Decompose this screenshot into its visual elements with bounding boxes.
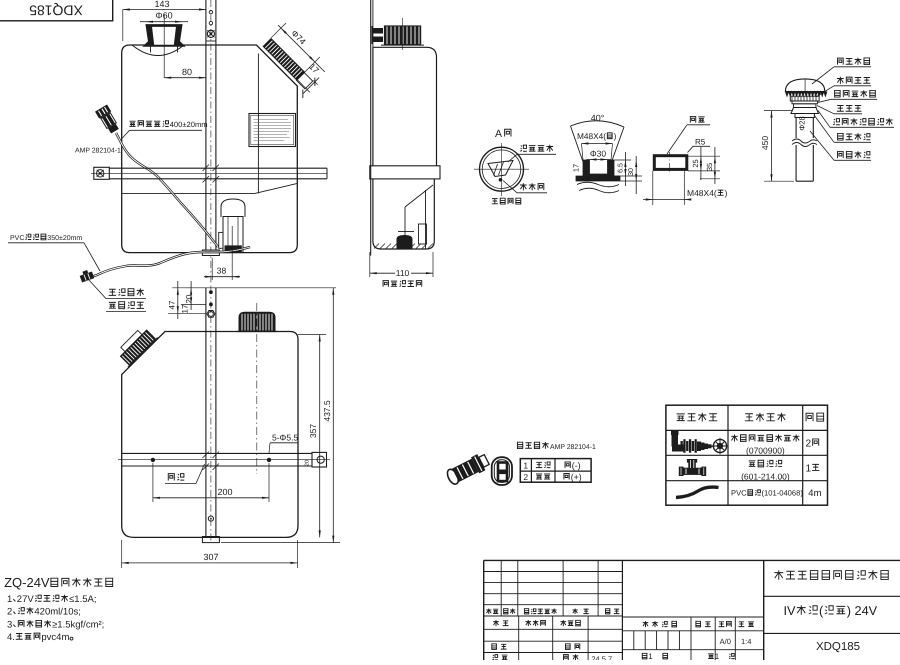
svg-text:Φ28: Φ28 xyxy=(798,116,807,130)
svg-text:): ) xyxy=(725,188,728,198)
svg-text:(601-214.00): (601-214.00) xyxy=(741,471,790,481)
svg-text:110: 110 xyxy=(396,268,410,278)
svg-text:5-Φ5.5: 5-Φ5.5 xyxy=(272,433,298,443)
svg-text:4m: 4m xyxy=(808,488,821,499)
svg-text:2: 2 xyxy=(7,607,12,618)
svg-text:27V: 27V xyxy=(17,594,35,605)
svg-text:80: 80 xyxy=(182,67,192,77)
svg-text:20: 20 xyxy=(305,460,311,466)
svg-text:437.5: 437.5 xyxy=(322,400,332,422)
svg-text:1: 1 xyxy=(806,463,812,474)
svg-text:1: 1 xyxy=(7,594,12,605)
svg-text:(-): (-) xyxy=(572,460,581,470)
svg-text:1: 1 xyxy=(523,460,528,470)
svg-text:1: 1 xyxy=(648,652,653,660)
svg-text:≤1.5A;: ≤1.5A; xyxy=(69,594,96,605)
svg-text:Φ60: Φ60 xyxy=(155,11,172,21)
svg-text:30: 30 xyxy=(628,168,635,176)
svg-text:pvc4m: pvc4m xyxy=(41,632,69,643)
svg-text:400±20mm: 400±20mm xyxy=(170,120,208,129)
svg-text:A: A xyxy=(495,128,502,140)
svg-text:38: 38 xyxy=(217,266,227,276)
svg-text:2: 2 xyxy=(806,438,812,449)
svg-text:(+): (+) xyxy=(571,472,582,482)
svg-text:XDQ185: XDQ185 xyxy=(29,2,83,18)
svg-text:PVC: PVC xyxy=(731,489,747,498)
svg-text:M48X4(: M48X4( xyxy=(687,188,717,198)
svg-text:Φ30: Φ30 xyxy=(590,148,607,158)
svg-text:143: 143 xyxy=(154,0,169,9)
svg-text:1:4: 1:4 xyxy=(741,637,751,646)
svg-text:AMP 282104-1: AMP 282104-1 xyxy=(75,148,121,155)
svg-text:ZQ-24V: ZQ-24V xyxy=(4,575,50,590)
svg-text:450: 450 xyxy=(760,136,770,150)
svg-text:R5: R5 xyxy=(695,138,706,147)
svg-text:25: 25 xyxy=(691,159,700,167)
svg-text:24.5.7: 24.5.7 xyxy=(591,655,612,661)
svg-text:6.5: 6.5 xyxy=(617,163,624,173)
svg-text:2: 2 xyxy=(523,472,528,482)
svg-text:A/0: A/0 xyxy=(720,637,731,646)
svg-text:M48X4(: M48X4( xyxy=(577,131,606,141)
svg-text:IV: IV xyxy=(784,604,797,618)
svg-text:1: 1 xyxy=(715,652,720,660)
svg-text:350±20mm: 350±20mm xyxy=(47,235,82,242)
svg-text:35: 35 xyxy=(705,163,714,171)
svg-text:): ) xyxy=(614,131,617,141)
svg-text:(0700900): (0700900) xyxy=(746,445,785,455)
svg-text:17: 17 xyxy=(572,164,581,172)
svg-text:357: 357 xyxy=(308,424,318,438)
svg-text:≥1.5kgf/cm²;: ≥1.5kgf/cm²; xyxy=(52,620,104,631)
svg-text:20: 20 xyxy=(185,294,194,303)
svg-text:4.: 4. xyxy=(7,632,15,643)
svg-text:3: 3 xyxy=(7,620,12,631)
svg-text:XDQ185: XDQ185 xyxy=(816,641,860,653)
svg-text:(101-04068): (101-04068) xyxy=(762,489,804,498)
svg-text:420ml/10s;: 420ml/10s; xyxy=(34,607,80,618)
svg-text:17: 17 xyxy=(181,304,190,313)
svg-text:PVC: PVC xyxy=(10,235,24,242)
svg-text:47: 47 xyxy=(168,300,177,309)
svg-text:307: 307 xyxy=(203,552,218,562)
svg-text:AMP 282104-1: AMP 282104-1 xyxy=(550,444,596,451)
svg-text:) 24V: ) 24V xyxy=(847,604,878,618)
svg-text:200: 200 xyxy=(217,487,232,497)
